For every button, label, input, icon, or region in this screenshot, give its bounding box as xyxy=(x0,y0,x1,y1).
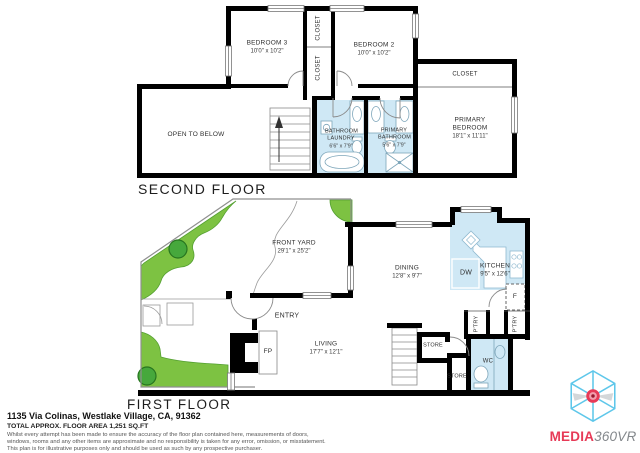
room-label-open-to-below: OPEN TO BELOW xyxy=(168,131,225,139)
address-text: 1135 Via Colinas, Westlake Village, CA, … xyxy=(7,411,427,421)
logo-text-360vr: 360VR xyxy=(594,429,636,444)
room-label-store-lower: STORE xyxy=(447,374,467,381)
room-label-store-upper: STORE xyxy=(423,343,443,350)
room-label-primary-bedroom: PRIMARY BEDROOM 18'1" x 11'11" xyxy=(445,117,495,142)
room-label-entry: ENTRY xyxy=(275,313,300,322)
room-name: KITCHEN xyxy=(480,263,510,271)
room-name: WC xyxy=(483,358,493,366)
room-name: CLOSET xyxy=(315,15,323,40)
logo-hexagon-icon xyxy=(545,367,640,427)
room-label-closet-lower: CLOSET xyxy=(315,55,323,80)
room-label-bathroom-laundry: BATHROOM LAUNDRY 6'6" x 7'9" xyxy=(325,128,357,149)
footer: 1135 Via Colinas, Westlake Village, CA, … xyxy=(7,411,427,453)
fireplace-mass xyxy=(230,333,258,373)
room-name: P'TRY xyxy=(513,316,520,333)
entry-door-arc xyxy=(231,298,273,319)
tree-icon xyxy=(169,240,187,258)
label-fireplace: FP xyxy=(264,348,273,356)
room-name: CLOSET xyxy=(452,71,477,79)
room-name: BATHROOM LAUNDRY xyxy=(325,128,357,142)
label-fridge: F xyxy=(513,293,517,301)
appliance-abbr: DW xyxy=(460,270,472,279)
disclaimer-line: This plan is for illustrative purposes o… xyxy=(7,446,427,453)
second-floor-thin-lines xyxy=(307,47,512,87)
floor-area-text: TOTAL APPROX. FLOOR AREA 1,251 SQ.FT xyxy=(7,423,427,430)
room-dims: 6'6" x 7'9" xyxy=(325,143,357,150)
room-dims: 18'1" x 11'11" xyxy=(445,134,495,142)
room-dims: 29'1" x 25'2" xyxy=(272,249,316,257)
second-floor-title: SECOND FLOOR xyxy=(138,181,267,197)
room-name: FRONT YARD xyxy=(272,240,316,248)
room-name: BEDROOM 3 xyxy=(247,40,288,48)
room-label-dining: DINING 12'8" x 9'7" xyxy=(392,265,422,282)
disclaimer-line: windows, rooms and any other items are a… xyxy=(7,439,427,446)
bathtub-icon xyxy=(320,152,364,172)
floor-plan-canvas: BEDROOM 3 10'0" x 10'2" CLOSET CLOSET BE… xyxy=(0,0,640,453)
room-name: STORE xyxy=(447,374,467,381)
room-label-primary-bathroom: PRIMARY BATHROOM 5'6" x 7'9" xyxy=(378,127,410,148)
toilet-icon xyxy=(474,366,488,382)
logo-text-media: MEDIA xyxy=(550,429,595,444)
room-label-wc: WC xyxy=(483,358,493,366)
stairs-first-floor xyxy=(392,328,417,385)
room-name: LIVING xyxy=(310,341,343,349)
room-name: STORE xyxy=(423,343,443,350)
appliance-abbr: F xyxy=(513,293,517,301)
room-dims: 10'0" x 10'2" xyxy=(354,51,395,59)
room-label-front-yard: FRONT YARD 29'1" x 25'2" xyxy=(272,240,316,257)
room-dims: 5'6" x 7'9" xyxy=(378,142,410,149)
room-label-bedroom3: BEDROOM 3 10'0" x 10'2" xyxy=(247,40,288,57)
room-label-bedroom2: BEDROOM 2 10'0" x 10'2" xyxy=(354,42,395,59)
room-name: PRIMARY BEDROOM xyxy=(445,117,495,133)
logo-wordmark: MEDIA360VR xyxy=(545,429,640,444)
media360vr-logo: MEDIA360VR xyxy=(545,367,640,444)
room-dims: 12'8" x 9'7" xyxy=(392,274,422,282)
room-dims: 9'5" x 12'6" xyxy=(480,272,510,280)
room-name: BEDROOM 2 xyxy=(354,42,395,50)
room-label-living: LIVING 17'7" x 12'1" xyxy=(310,341,343,358)
stairs-second-floor xyxy=(270,108,310,170)
room-name: ENTRY xyxy=(275,313,300,322)
room-name: PRIMARY BATHROOM xyxy=(378,127,410,141)
room-name: FP xyxy=(264,348,273,356)
room-label-closet-primary: CLOSET xyxy=(452,71,477,79)
room-name: OPEN TO BELOW xyxy=(168,131,225,139)
room-name: CLOSET xyxy=(315,55,323,80)
room-label-pantry-left: P'TRY xyxy=(474,316,481,333)
room-dims: 17'7" x 12'1" xyxy=(310,350,343,358)
stairs-up-arrow xyxy=(275,116,283,162)
disclaimer-line: Whilst every attempt has been made to en… xyxy=(7,432,427,439)
room-name: P'TRY xyxy=(474,316,481,333)
room-name: DINING xyxy=(392,265,422,273)
label-dishwasher: DW xyxy=(460,270,472,279)
room-label-kitchen: KITCHEN 9'5" x 12'6" xyxy=(480,263,510,280)
disclaimer-text: Whilst every attempt has been made to en… xyxy=(7,432,427,453)
room-dims: 10'0" x 10'2" xyxy=(247,49,288,57)
room-label-pantry-right: P'TRY xyxy=(513,316,520,333)
first-floor-title: FIRST FLOOR xyxy=(127,397,231,412)
room-label-closet-upper: CLOSET xyxy=(315,15,323,40)
